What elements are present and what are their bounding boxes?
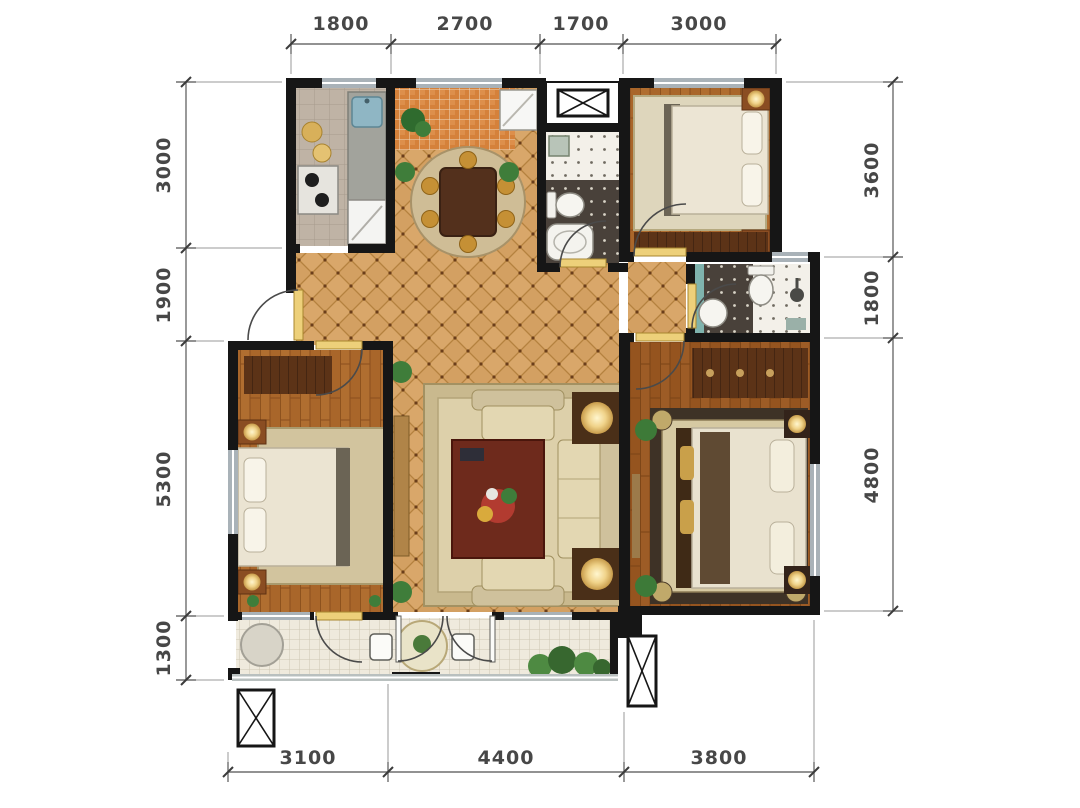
dining-chair [422,178,439,195]
wall-balcony-top-a [228,612,242,620]
dim-left-1: 3000 [153,137,175,194]
wall-left-upper [286,78,296,293]
lamp-icon [581,558,613,590]
dim-bottom-3: 3800 [691,747,748,769]
pillow [742,164,762,206]
wall-bedroom-north-right [770,78,782,262]
corridor-floor [628,262,686,333]
lamp-icon [788,415,806,433]
floor-plan-page: 1800 2700 1700 3000 3000 1900 5300 1300 … [0,0,1080,808]
kitchen-plate [302,122,322,142]
pillow [770,440,794,492]
window-master [810,464,820,576]
wall-bath1-bottom-b [608,263,628,272]
burner [315,193,329,207]
plant-icon [369,595,381,607]
palm-plant-icon [395,162,415,182]
wardrobe [244,356,332,394]
wall-bath2-left-a [686,264,695,284]
wall-column-link [618,606,642,638]
dim-left-2: 1900 [153,267,175,324]
pillow [244,508,266,552]
wall-master-top-a [619,333,634,342]
wall-balcony-right [610,612,618,676]
balcony-pouf [241,624,283,666]
wall-bedroom-north-bottom-a [619,252,634,262]
flowers-icon [477,506,493,522]
plant-icon [635,419,657,441]
toilet-tank [547,192,556,218]
plant-icon [390,361,412,383]
washbasin [549,136,569,156]
flowers-icon [501,488,517,504]
wall-balcony-top-c [362,612,398,620]
lamp-icon [244,424,261,441]
dim-right-3: 4800 [861,447,883,504]
bench-cushion [680,446,694,480]
bath-mat [786,318,806,330]
shower-head-icon [790,288,804,302]
balcony-chair [370,634,392,660]
plant-icon [415,121,431,137]
wall-living-master [619,342,630,606]
dimensions-top: 1800 2700 1700 3000 [286,13,781,74]
dim-top-1: 1800 [313,13,370,35]
bed-throw [336,448,350,566]
toilet [556,193,584,217]
pillow [244,458,266,502]
plant-icon [247,595,259,607]
lamp-icon [788,571,806,589]
dim-right-2: 1800 [861,270,883,327]
armchair [482,556,554,590]
dim-left-4: 1300 [153,620,175,677]
wall-balcony-top-b [310,612,314,620]
window-balcony-left [242,612,310,620]
wall-kitchen-dining [386,78,395,253]
window-dining [416,78,502,88]
burner [305,173,319,187]
window-kitchen [322,78,376,88]
window-bedroom-north [654,78,744,88]
palm-plant-icon [499,162,519,182]
window-balcony-right [504,612,572,620]
window-bathroom2 [772,252,808,262]
hanger-icon [766,369,774,377]
dim-top-3: 1700 [553,13,610,35]
plant-icon [390,581,412,603]
wall-bath1-bottom-a [537,263,560,272]
hanger-icon [706,369,714,377]
wall-master-bottom [619,606,810,615]
column-right-icon [628,636,656,706]
lamp-icon [748,91,765,108]
wall-master-top-b [684,333,810,342]
plant-icon [635,575,657,597]
window-bedroom-west [228,450,238,534]
lamp-icon [244,574,261,591]
entry-door [248,290,303,340]
living-room [390,361,622,606]
wall-bath1-bedroom [619,78,630,262]
column-left-icon [238,690,274,746]
wall-shaft-bottom [537,124,628,132]
kitchen-plate [313,144,331,162]
wall-bedroom-west-right [383,346,393,612]
console-table [632,474,640,558]
pillow [742,112,762,154]
wall-dining-shaft [537,78,546,272]
dining-chair [460,236,477,253]
dim-right-1: 3600 [861,142,883,199]
bed-runner [700,432,730,584]
dining-table [440,168,496,236]
toilet [749,275,773,305]
bedroom-north [634,88,770,252]
hanger-icon [736,369,744,377]
stove [298,166,338,214]
wall-bedroom-west-top-a [228,341,314,350]
wall-kitchen-bottom-a [286,244,300,253]
bench-cushion [680,500,694,534]
dim-bottom-1: 3100 [280,747,337,769]
toilet-tank [748,266,774,275]
dining-chair [422,211,439,228]
sink-faucet [365,99,370,104]
flowers-icon [486,488,498,500]
sofa [558,440,600,558]
balcony-plants-icon [548,646,576,674]
dim-left-3: 5300 [153,451,175,508]
dining-chair [460,152,477,169]
dim-bottom-2: 4400 [478,747,535,769]
armchair [482,406,554,440]
dim-top-2: 2700 [437,13,494,35]
dim-top-4: 3000 [671,13,728,35]
table-decor [460,448,484,461]
lamp-icon [581,402,613,434]
console-table [394,416,409,556]
dining-chair [498,211,515,228]
balcony-railing [232,674,618,681]
floor-plan-drawing: 1800 2700 1700 3000 3000 1900 5300 1300 … [0,0,1080,808]
round-washbasin [699,299,727,327]
